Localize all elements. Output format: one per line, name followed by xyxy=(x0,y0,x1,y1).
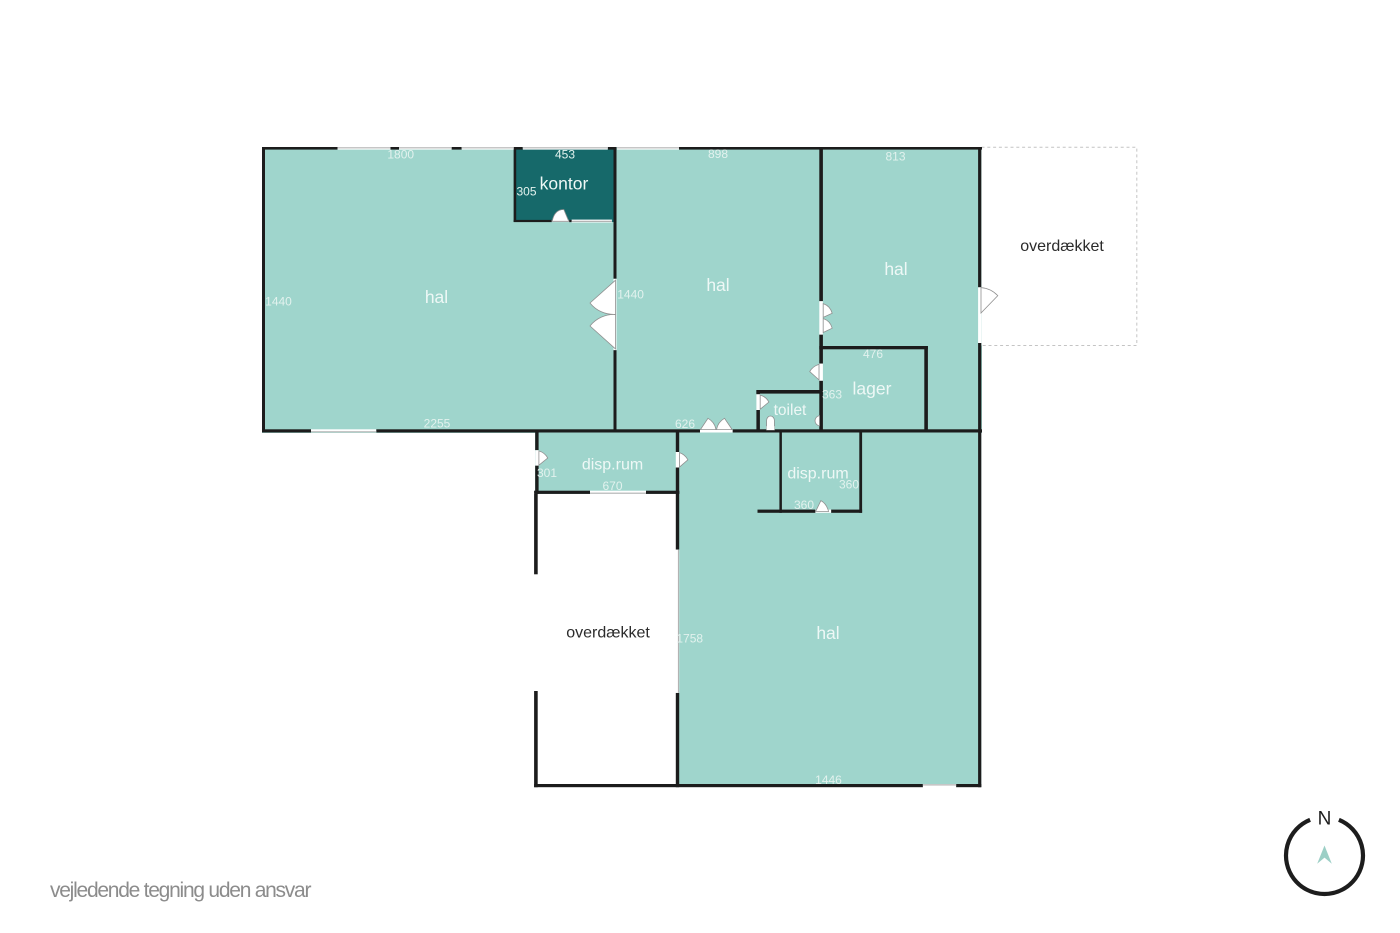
svg-text:453: 453 xyxy=(555,147,575,161)
svg-text:626: 626 xyxy=(675,417,695,431)
svg-text:1758: 1758 xyxy=(676,632,703,646)
svg-text:lager: lager xyxy=(853,379,892,399)
svg-text:disp.rum: disp.rum xyxy=(582,457,643,474)
svg-text:overdækket: overdækket xyxy=(1020,238,1104,255)
svg-text:1800: 1800 xyxy=(387,148,414,162)
svg-text:2255: 2255 xyxy=(424,417,451,431)
svg-text:670: 670 xyxy=(602,479,622,493)
svg-text:1440: 1440 xyxy=(617,288,644,302)
svg-text:898: 898 xyxy=(708,147,728,161)
svg-text:toilet: toilet xyxy=(774,402,807,419)
svg-text:363: 363 xyxy=(822,388,842,402)
svg-text:hal: hal xyxy=(706,275,729,295)
svg-text:360: 360 xyxy=(839,477,859,491)
svg-text:1440: 1440 xyxy=(265,295,292,309)
svg-text:813: 813 xyxy=(885,149,905,163)
svg-text:hal: hal xyxy=(884,259,907,279)
svg-text:305: 305 xyxy=(516,185,536,199)
svg-text:kontor: kontor xyxy=(540,174,589,194)
svg-text:301: 301 xyxy=(537,466,557,480)
svg-text:hal: hal xyxy=(816,623,839,643)
svg-text:N: N xyxy=(1318,809,1332,830)
svg-text:360: 360 xyxy=(794,498,814,512)
svg-text:476: 476 xyxy=(863,347,883,361)
svg-text:overdækket: overdækket xyxy=(566,625,650,642)
svg-text:1446: 1446 xyxy=(815,773,842,787)
svg-text:vejledende tegning uden ansvar: vejledende tegning uden ansvar xyxy=(50,879,311,902)
svg-text:hal: hal xyxy=(425,287,448,307)
